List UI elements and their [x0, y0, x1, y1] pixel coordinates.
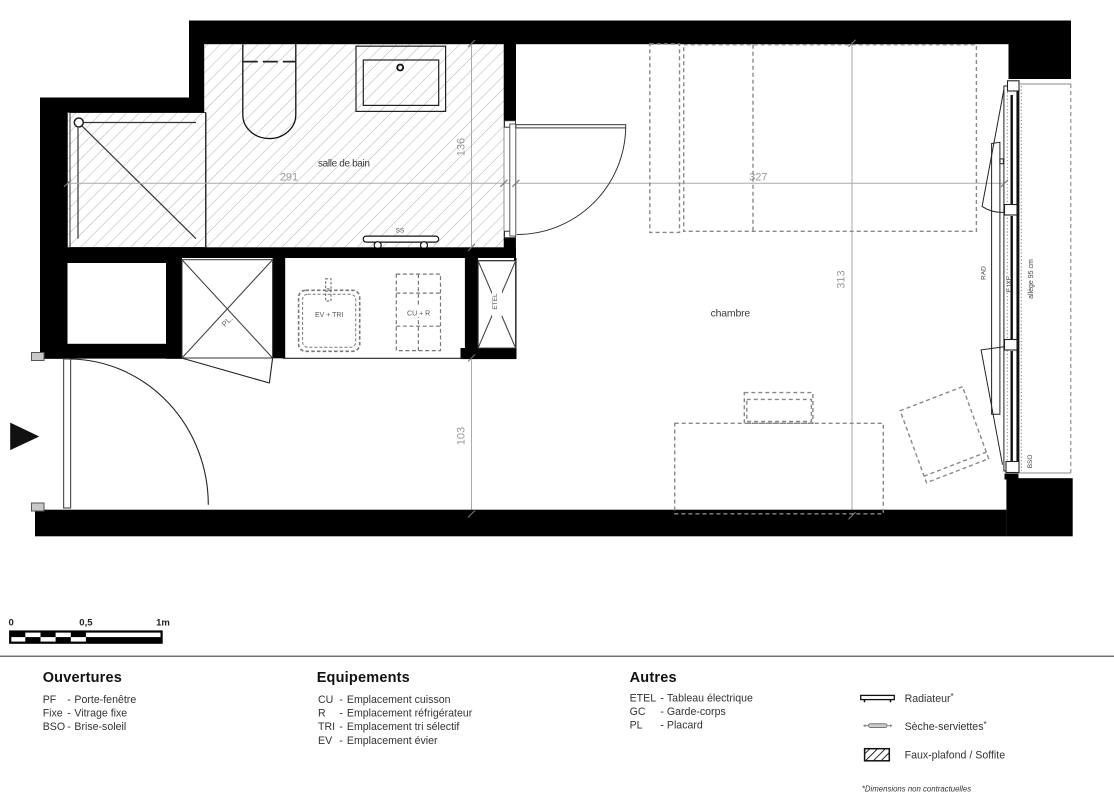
svg-text:Vitrage fixe: Vitrage fixe [74, 708, 127, 720]
svg-text:327: 327 [749, 172, 767, 184]
svg-text:GC: GC [630, 706, 646, 718]
svg-text:F IXE: F IXE [1006, 275, 1013, 292]
svg-text:-: - [339, 721, 343, 733]
svg-text:0,5: 0,5 [79, 618, 93, 629]
svg-text:Porte-fenêtre: Porte-fenêtre [74, 694, 136, 706]
svg-text:0: 0 [9, 618, 14, 629]
svg-text:Sèche-serviettes*: Sèche-serviettes* [905, 720, 987, 733]
svg-text:Emplacement cuisson: Emplacement cuisson [347, 694, 451, 706]
svg-text:Garde-corps: Garde-corps [667, 706, 726, 718]
svg-text:Faux-plafond / Soffite: Faux-plafond / Soffite [905, 750, 1006, 762]
svg-text:Emplacement tri sélectif: Emplacement tri sélectif [347, 721, 460, 733]
svg-text:BSO: BSO [43, 721, 65, 733]
svg-text:EV: EV [318, 735, 333, 747]
svg-text:Equipements: Equipements [317, 670, 410, 686]
svg-text:-: - [660, 720, 664, 732]
svg-text:-: - [339, 694, 343, 706]
svg-text:Fixe: Fixe [43, 708, 63, 720]
svg-text:PL: PL [630, 720, 643, 732]
svg-text:Emplacement évier: Emplacement évier [347, 735, 438, 747]
svg-text:-: - [660, 693, 664, 705]
svg-text:Ouvertures: Ouvertures [43, 670, 122, 686]
svg-text:103: 103 [456, 427, 468, 445]
svg-text:BSO: BSO [1027, 455, 1034, 469]
svg-text:-: - [660, 706, 664, 718]
svg-text:Radiateur*: Radiateur* [905, 692, 954, 705]
svg-text:SS: SS [396, 228, 405, 235]
svg-text:-: - [339, 735, 343, 747]
svg-text:ETEL: ETEL [630, 693, 657, 705]
svg-text:PF: PF [43, 694, 57, 706]
svg-text:TRI: TRI [318, 721, 335, 733]
svg-text:CU + R: CU + R [407, 311, 430, 318]
svg-text:-: - [67, 694, 71, 706]
svg-text:Autres: Autres [630, 670, 677, 686]
svg-text:Brise-soleil: Brise-soleil [74, 721, 126, 733]
svg-text:EV + TRI: EV + TRI [315, 312, 344, 319]
svg-text:Emplacement réfrigérateur: Emplacement réfrigérateur [347, 708, 473, 720]
svg-text:RAD: RAD [981, 266, 988, 280]
svg-text:*Dimensions non contractuelles: *Dimensions non contractuelles [862, 785, 971, 794]
svg-text:salle de bain: salle de bain [318, 159, 370, 170]
svg-text:1m: 1m [156, 618, 170, 629]
svg-text:291: 291 [280, 172, 298, 184]
svg-text:ETEL: ETEL [492, 293, 499, 310]
svg-text:-: - [67, 721, 71, 733]
svg-text:CU: CU [318, 694, 333, 706]
svg-text:-: - [339, 708, 343, 720]
svg-text:R: R [318, 708, 326, 720]
svg-text:-: - [67, 708, 71, 720]
svg-text:136: 136 [456, 138, 468, 156]
svg-text:313: 313 [836, 270, 848, 288]
svg-text:Placard: Placard [667, 720, 703, 732]
svg-text:chambre: chambre [711, 308, 751, 320]
svg-text:Tableau électrique: Tableau électrique [667, 693, 753, 705]
svg-text:allège 95 cm: allège 95 cm [1028, 259, 1035, 299]
